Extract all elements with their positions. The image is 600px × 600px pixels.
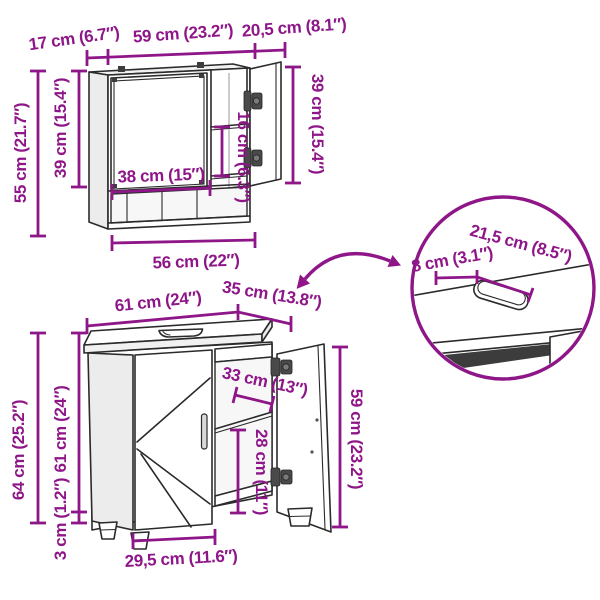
dim-label-mirror-door-height: 39 cm (15.4″) xyxy=(51,78,70,178)
dimension-diagram: 17 cm (6.7″) 59 cm (23.2″) 20,5 cm (8.1″… xyxy=(0,0,600,600)
door-handle xyxy=(202,414,208,449)
sink-pipe-cutout xyxy=(159,329,203,337)
dim-label-mirror-door-w: 38 cm (15″) xyxy=(117,164,205,186)
dim-label-mirror-bottom-width: 56 cm (22″) xyxy=(152,250,240,272)
vanity-cabinet-drawing xyxy=(84,319,331,549)
hinge-icon xyxy=(271,468,292,486)
shelf-pin-hole xyxy=(310,450,313,453)
hinge-icon xyxy=(244,91,262,111)
door-fitting-mark xyxy=(112,78,117,82)
dim-label-vanity-height: 64 cm (25.2″) xyxy=(9,400,28,500)
dim-label-mirror-height: 55 cm (21.7″) xyxy=(11,103,30,203)
dim-label-mirror-width: 59 cm (23.2″) xyxy=(132,21,233,47)
vanity-side-panel xyxy=(88,353,133,530)
shelf-pin-hole xyxy=(315,418,318,421)
dim-label-vanity-door-height: 59 cm (23.2″) xyxy=(347,389,366,489)
door-fitting-mark xyxy=(199,74,204,78)
dim-label-shelf-spacing: 16 cm (6.3″) xyxy=(234,111,253,202)
dim-label-shelf-clearance: 28 cm (11″) xyxy=(252,429,271,515)
dim-label-feet-height: 3 cm (1.2″) xyxy=(51,478,70,560)
pipe-cutout-detail: 21,5 cm (8.5″) 8 cm (3.1″) xyxy=(400,197,600,390)
mirror-cabinet-side-panel xyxy=(89,72,108,229)
wall-bracket xyxy=(197,62,204,68)
zoom-arrow-icon xyxy=(297,254,401,289)
vanity-left-door xyxy=(135,350,212,530)
dim-label-vanity-width: 61 cm (24″) xyxy=(114,288,202,316)
diagram-canvas: 17 cm (6.7″) 59 cm (23.2″) 20,5 cm (8.1″… xyxy=(0,0,600,600)
mirror-cabinet-open-door xyxy=(250,62,281,186)
dim-label-side-door-height: 39 cm (15.4″) xyxy=(308,74,327,174)
dim-label-vanity-body-height: 61 cm (24″) xyxy=(51,386,70,473)
dim-label-mirror-door-width: 20,5 cm (8.1″) xyxy=(241,14,347,40)
wall-bracket xyxy=(118,66,125,72)
